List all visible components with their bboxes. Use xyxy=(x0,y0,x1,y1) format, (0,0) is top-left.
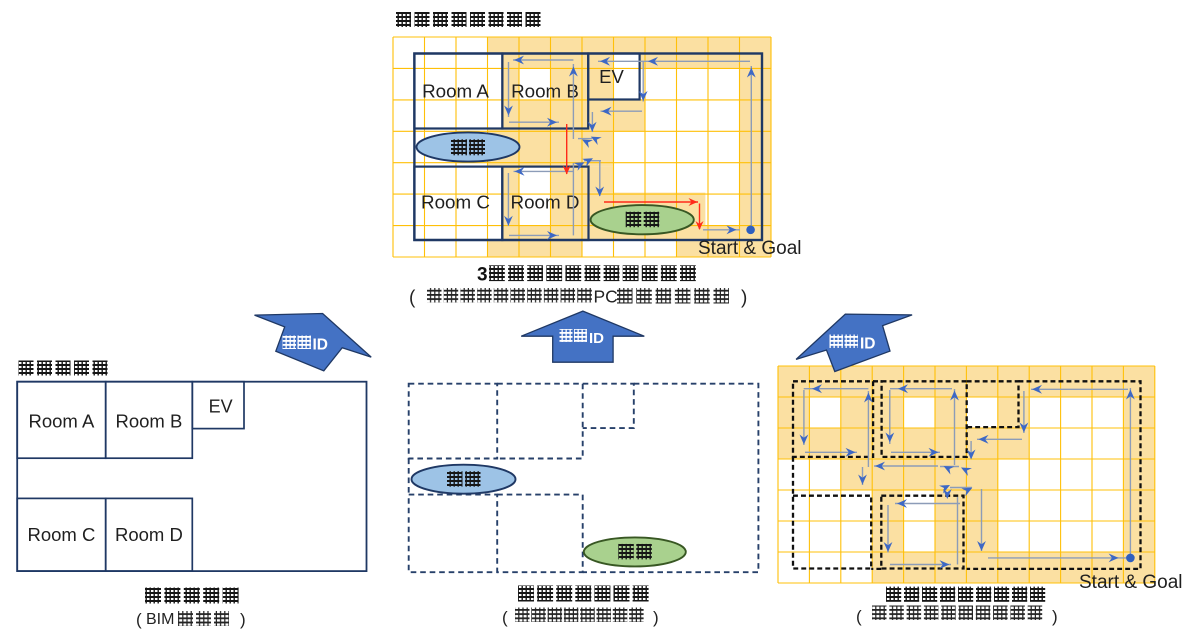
svg-text:Room D: Room D xyxy=(511,192,580,213)
svg-text:Room D: Room D xyxy=(115,524,183,545)
svg-text:ID: ID xyxy=(589,330,604,347)
svg-text:PC: PC xyxy=(594,287,618,307)
svg-text:(: ( xyxy=(502,608,508,627)
svg-text:): ) xyxy=(741,288,747,309)
svg-text:Room B: Room B xyxy=(115,411,182,432)
svg-text:Room A: Room A xyxy=(422,81,489,102)
svg-text:): ) xyxy=(1052,607,1058,626)
svg-text:EV: EV xyxy=(599,66,624,87)
svg-text:BIM: BIM xyxy=(146,611,174,628)
svg-text:Room C: Room C xyxy=(421,192,490,213)
svg-text:(: ( xyxy=(856,607,862,626)
svg-text:Room C: Room C xyxy=(27,524,95,545)
svg-text:Room A: Room A xyxy=(28,411,94,432)
svg-text:3: 3 xyxy=(477,265,488,286)
svg-text:Start & Goal: Start & Goal xyxy=(1079,572,1183,593)
svg-text:): ) xyxy=(240,610,246,629)
svg-text:ID: ID xyxy=(860,336,876,353)
svg-text:Room B: Room B xyxy=(511,81,579,102)
svg-text:Start & Goal: Start & Goal xyxy=(698,238,802,259)
svg-text:(: ( xyxy=(136,610,142,629)
svg-text:EV: EV xyxy=(209,397,233,417)
svg-text:(: ( xyxy=(409,288,416,309)
svg-text:): ) xyxy=(653,608,659,627)
svg-text:ID: ID xyxy=(313,337,329,354)
